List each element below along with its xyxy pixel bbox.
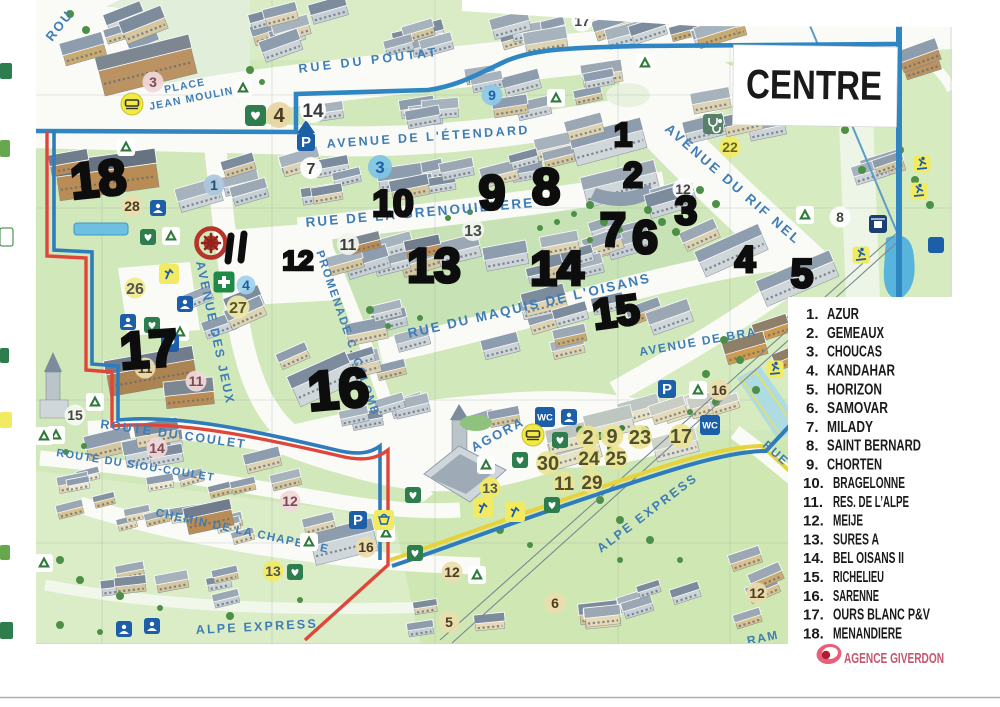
svg-text:15.: 15. <box>803 569 824 586</box>
svg-text:29: 29 <box>581 473 602 494</box>
svg-text:10: 10 <box>372 183 413 224</box>
svg-text:18: 18 <box>68 148 129 210</box>
svg-text:4: 4 <box>735 239 756 280</box>
svg-text:2: 2 <box>582 427 593 449</box>
svg-text:6.: 6. <box>806 400 819 417</box>
svg-text:25: 25 <box>605 449 627 470</box>
svg-text:MENANDIERE: MENANDIERE <box>833 625 902 642</box>
svg-text:2: 2 <box>623 156 642 195</box>
svg-text:1.: 1. <box>806 306 819 323</box>
svg-text:17.: 17. <box>803 607 824 624</box>
svg-text:1: 1 <box>210 177 218 193</box>
svg-text:1: 1 <box>614 116 632 153</box>
svg-text:3: 3 <box>149 74 157 90</box>
svg-text:8: 8 <box>836 209 844 225</box>
svg-text:12: 12 <box>749 585 765 601</box>
svg-text:BRAGELONNE: BRAGELONNE <box>833 475 905 492</box>
svg-text:P: P <box>353 512 363 529</box>
svg-text:12: 12 <box>444 564 460 580</box>
svg-text:7: 7 <box>600 203 626 256</box>
svg-text:13: 13 <box>482 480 498 496</box>
svg-text:14: 14 <box>149 440 165 456</box>
svg-text:24: 24 <box>578 449 600 470</box>
svg-text:BEL OISANS II: BEL OISANS II <box>833 550 904 567</box>
svg-text:3: 3 <box>375 158 384 177</box>
svg-text:27: 27 <box>229 300 247 317</box>
svg-text:10.: 10. <box>803 475 824 492</box>
svg-text:16: 16 <box>711 382 727 398</box>
svg-text:9: 9 <box>479 167 506 220</box>
svg-text:MILADY: MILADY <box>827 419 874 436</box>
svg-text:13: 13 <box>265 563 281 579</box>
svg-text:18.: 18. <box>803 625 824 642</box>
svg-text:6: 6 <box>632 211 658 263</box>
svg-text:17: 17 <box>118 319 180 381</box>
svg-text:5.: 5. <box>806 381 819 398</box>
svg-text:15: 15 <box>590 285 643 338</box>
svg-text:4.: 4. <box>806 363 819 380</box>
svg-text:SAMOVAR: SAMOVAR <box>827 400 888 417</box>
svg-text:RES. DE L’ALPE: RES. DE L’ALPE <box>833 494 909 511</box>
svg-text:KANDAHAR: KANDAHAR <box>827 363 895 380</box>
svg-text:6: 6 <box>551 595 559 611</box>
svg-text:13: 13 <box>407 240 460 293</box>
svg-text:SURES A: SURES A <box>833 531 879 548</box>
svg-text:9: 9 <box>606 426 617 448</box>
svg-text:RICHELIEU: RICHELIEU <box>833 569 884 586</box>
svg-text:HORIZON: HORIZON <box>827 381 882 398</box>
svg-text:9.: 9. <box>806 456 819 473</box>
svg-text:MEIJE: MEIJE <box>833 513 863 530</box>
svg-text:CHORTEN: CHORTEN <box>827 456 882 473</box>
svg-text:5: 5 <box>445 614 453 630</box>
svg-text:11: 11 <box>189 373 204 389</box>
svg-text:CENTRE: CENTRE <box>746 61 883 109</box>
svg-text:13.: 13. <box>803 531 824 548</box>
svg-text:7: 7 <box>307 161 316 178</box>
svg-text:AZUR: AZUR <box>827 306 859 323</box>
svg-text:3: 3 <box>675 189 697 233</box>
svg-text:12: 12 <box>282 493 298 509</box>
svg-text:16: 16 <box>305 356 371 423</box>
svg-text:26: 26 <box>126 281 144 298</box>
svg-text:16.: 16. <box>803 588 824 605</box>
svg-text:30: 30 <box>537 453 559 475</box>
svg-text:13: 13 <box>464 223 482 240</box>
svg-text:7.: 7. <box>806 419 819 436</box>
svg-text:8.: 8. <box>806 438 819 455</box>
svg-text:14: 14 <box>530 243 584 296</box>
svg-text:14.: 14. <box>803 550 824 567</box>
svg-text:16: 16 <box>358 539 374 555</box>
svg-text:AGENCE GIVERDON: AGENCE GIVERDON <box>844 651 944 667</box>
svg-text:22: 22 <box>722 139 738 155</box>
svg-text:CHOUCAS: CHOUCAS <box>827 344 882 361</box>
svg-text:WC: WC <box>702 421 718 432</box>
svg-text:OURS BLANC P&V: OURS BLANC P&V <box>833 607 930 624</box>
svg-text:3.: 3. <box>806 344 819 361</box>
svg-text:P: P <box>662 381 672 398</box>
svg-text:P: P <box>301 134 311 151</box>
svg-text:17: 17 <box>670 426 692 448</box>
svg-text:15: 15 <box>67 407 83 423</box>
svg-text:4: 4 <box>242 277 250 293</box>
svg-text:11: 11 <box>340 237 357 254</box>
svg-text:11: 11 <box>554 474 575 495</box>
svg-text:12.: 12. <box>803 513 824 530</box>
svg-text:GEMEAUX: GEMEAUX <box>827 325 884 342</box>
svg-text:2.: 2. <box>806 325 819 342</box>
svg-text:SAINT BERNARD: SAINT BERNARD <box>827 438 921 455</box>
svg-text:12: 12 <box>282 245 313 276</box>
svg-text:4: 4 <box>273 105 285 127</box>
svg-text:11.: 11. <box>803 494 823 511</box>
svg-text:9: 9 <box>488 87 496 103</box>
svg-text:8: 8 <box>532 158 560 215</box>
svg-text:WC: WC <box>537 413 553 424</box>
svg-text:23: 23 <box>629 427 651 449</box>
svg-text:14: 14 <box>302 101 324 122</box>
svg-text:SARENNE: SARENNE <box>833 588 879 605</box>
svg-text:5: 5 <box>791 252 813 296</box>
